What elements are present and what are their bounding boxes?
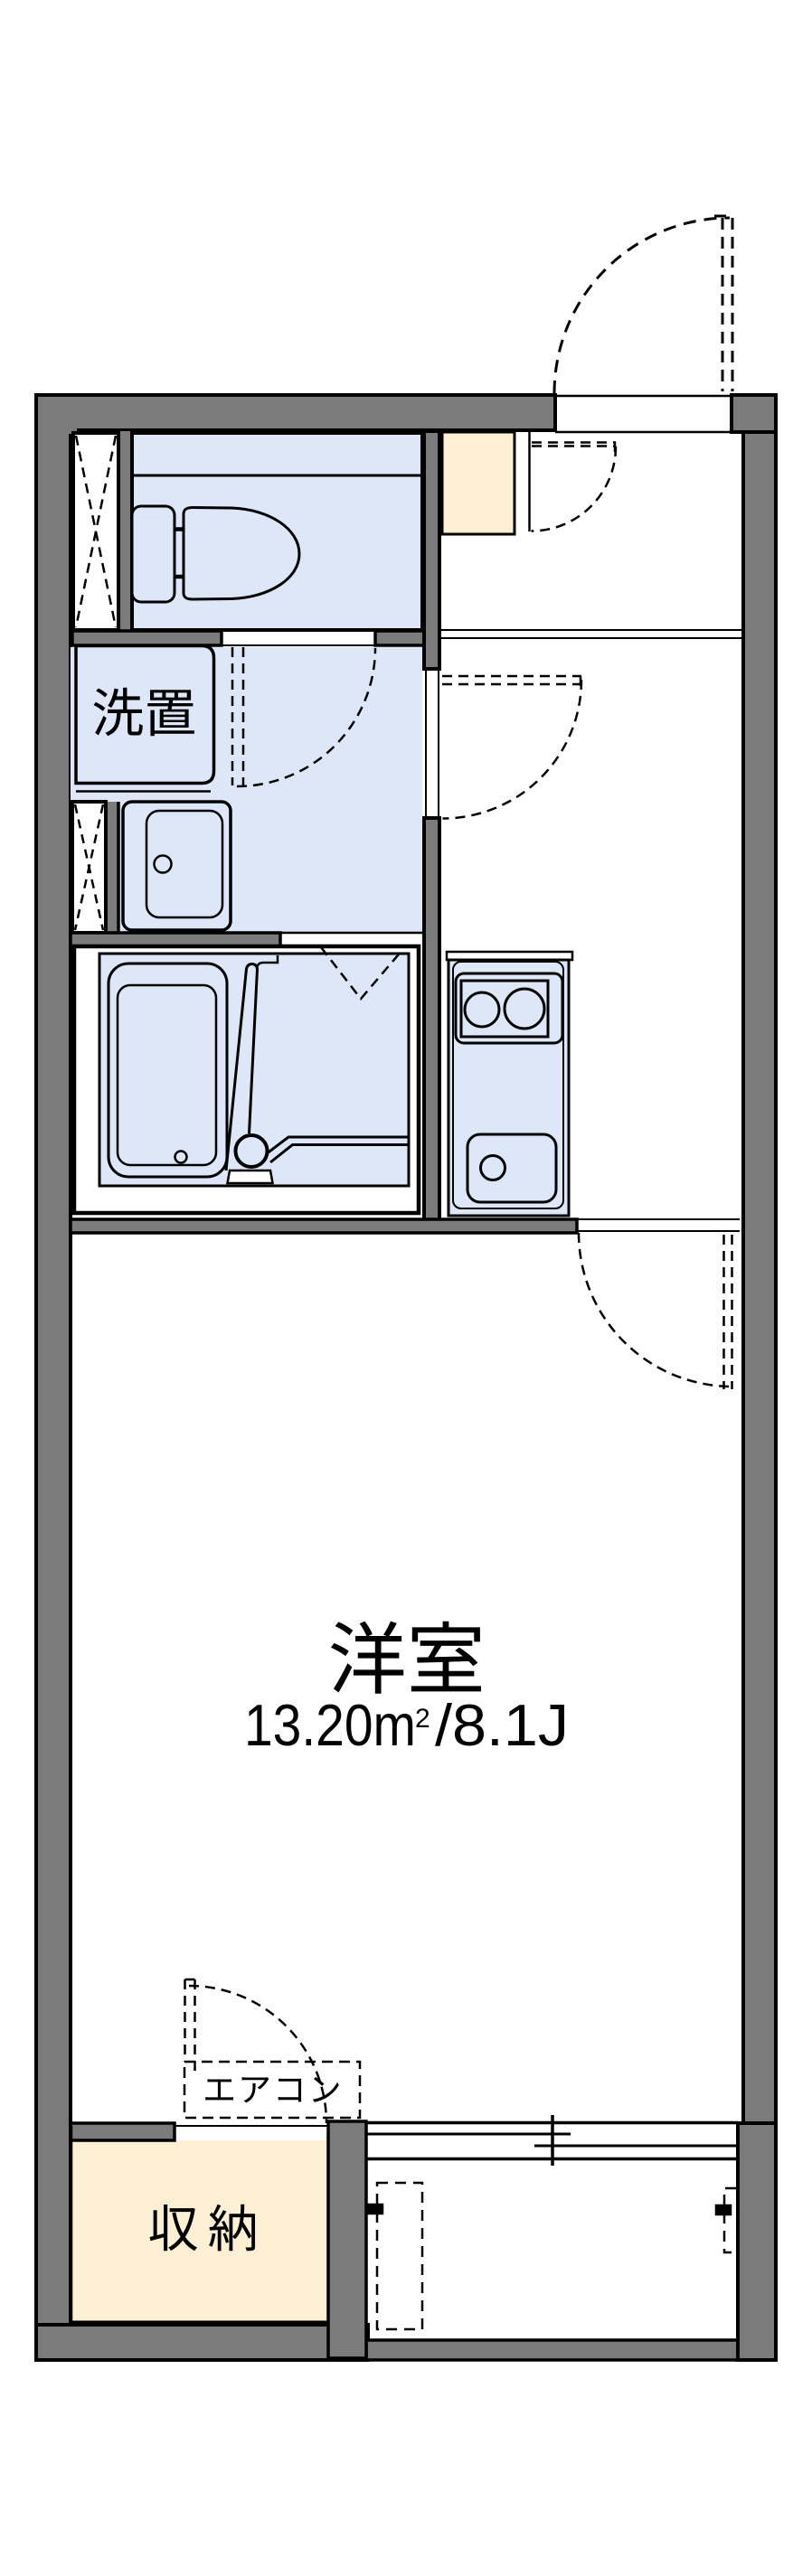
svg-text:/8.1J: /8.1J [435, 1692, 569, 1758]
svg-text:13.20m: 13.20m [244, 1692, 416, 1758]
svg-text:2: 2 [415, 1704, 430, 1734]
